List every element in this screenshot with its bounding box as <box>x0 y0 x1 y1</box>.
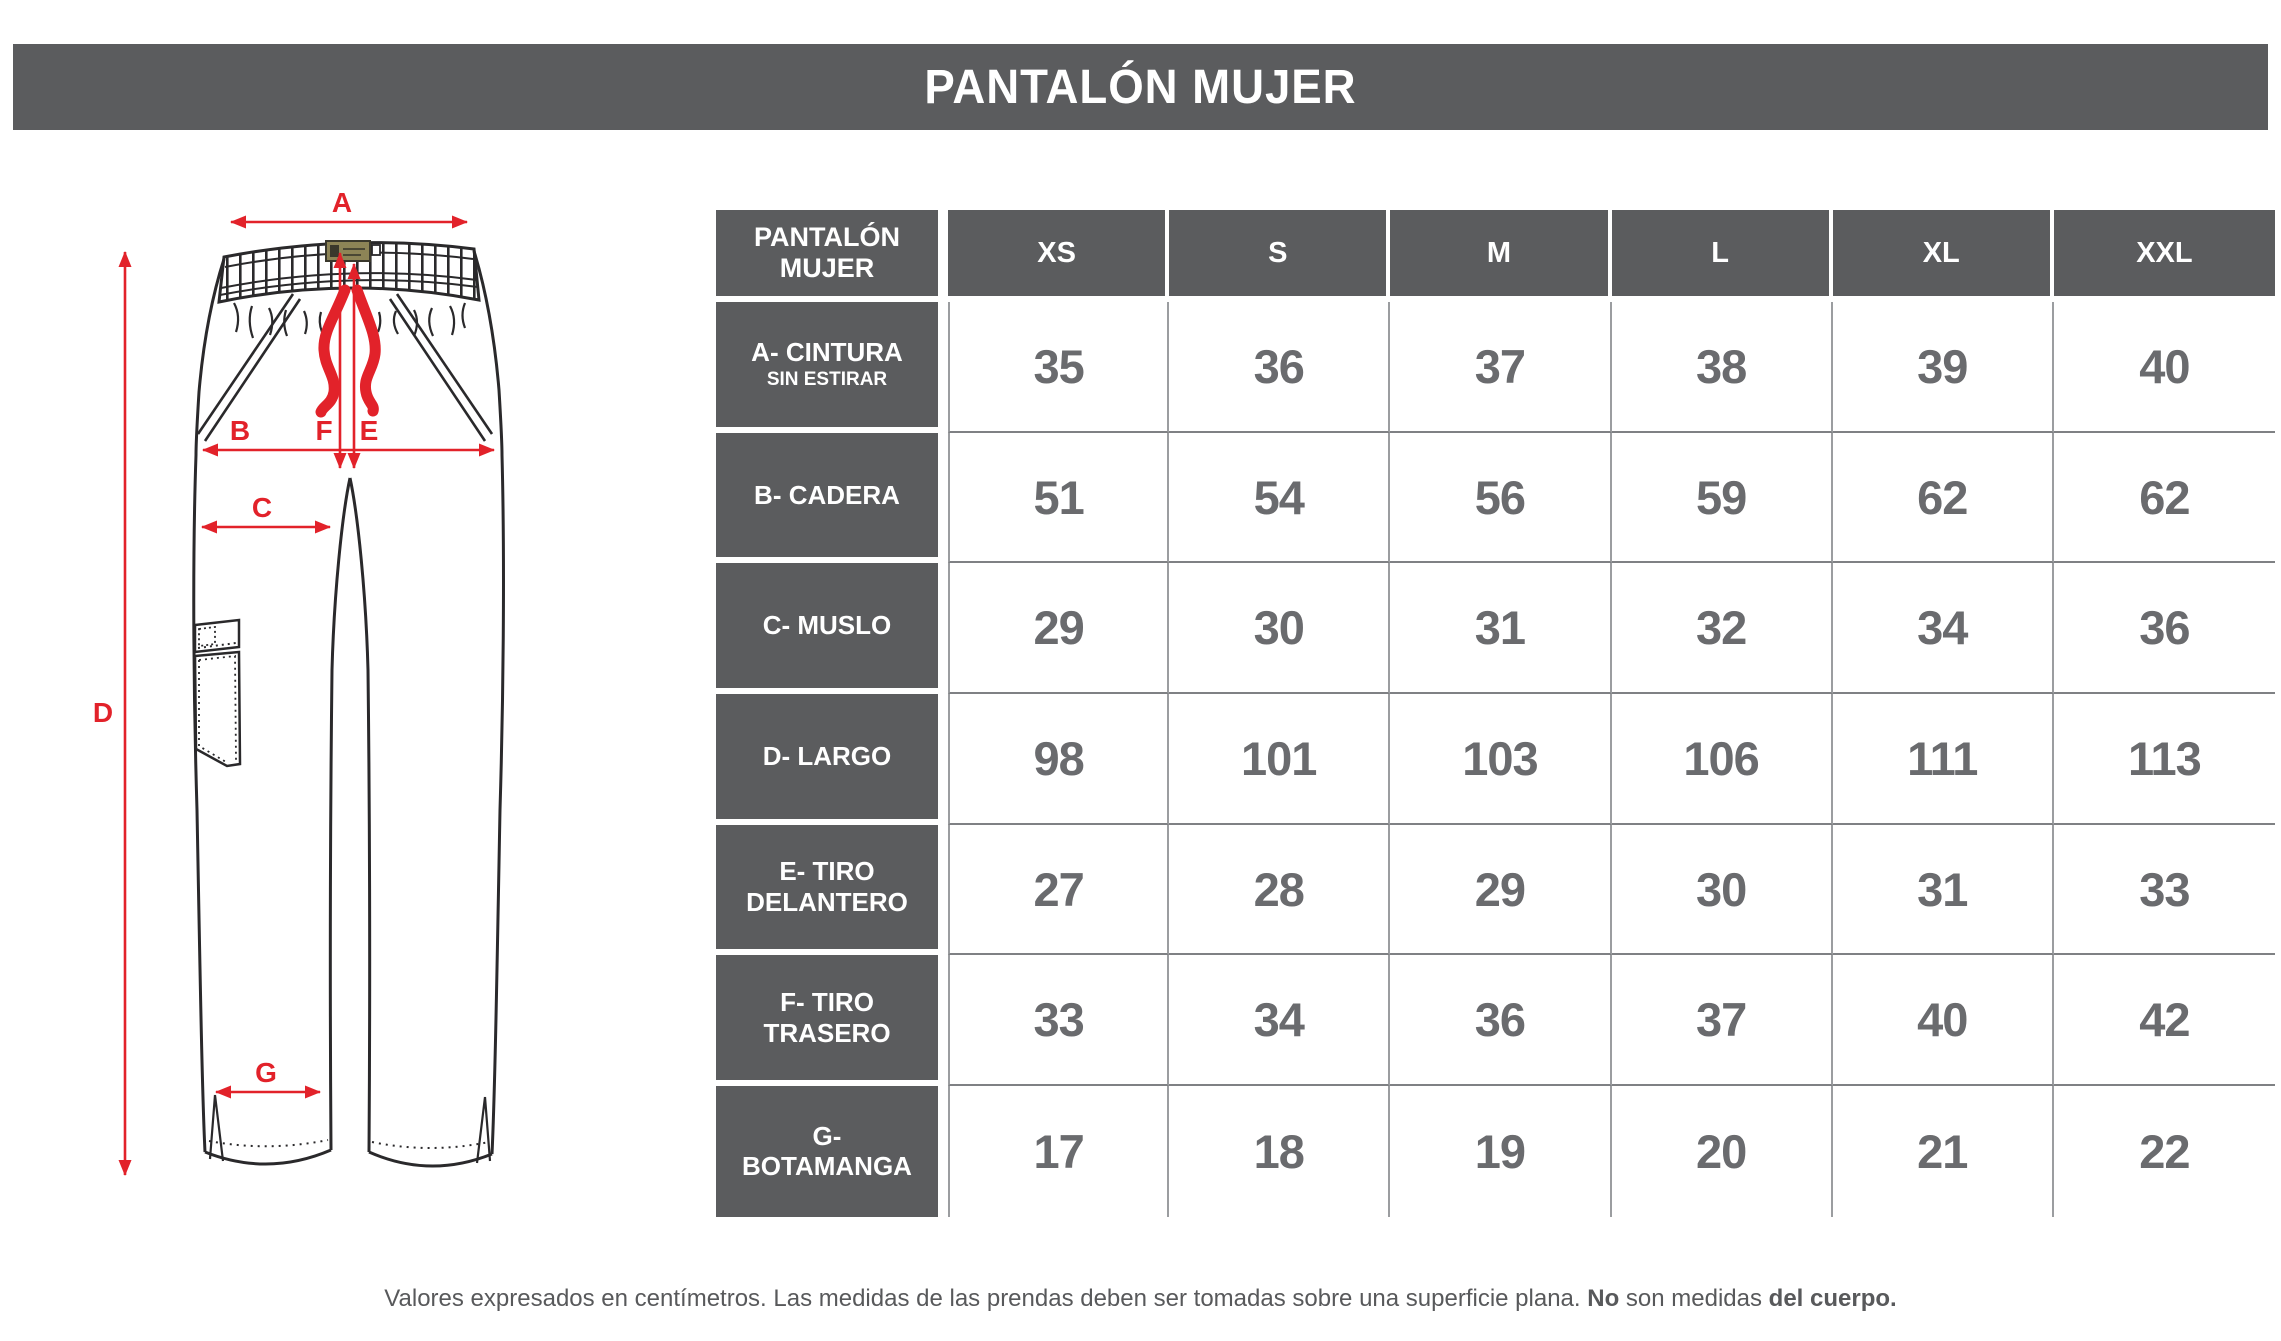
row-label-muslo: C- MUSLO <box>716 563 938 688</box>
footer-note: Valores expresados en centímetros. Las m… <box>0 1285 2281 1313</box>
table-cell: 34 <box>1833 563 2054 694</box>
footer-text: Valores expresados en centímetros. Las m… <box>384 1285 1587 1312</box>
table-cell: 113 <box>2054 694 2275 825</box>
measure-label-f: F <box>315 415 332 446</box>
measure-arrows <box>125 222 494 1175</box>
table-cell: 111 <box>1833 694 2054 825</box>
page-title: PANTALÓN MUJER <box>924 60 1356 115</box>
table-cell: 19 <box>1390 1086 1611 1217</box>
table-cell: 62 <box>1833 433 2054 564</box>
table-cell: 28 <box>1169 825 1390 956</box>
size-guide-page: { "title_bar": { "title": "PANTALÓN MUJE… <box>0 0 2281 1341</box>
measure-label-g: G <box>255 1057 277 1088</box>
table-cell: 36 <box>1390 955 1611 1086</box>
measure-label-d: D <box>93 697 113 728</box>
size-header-xl: XL <box>1833 210 2050 296</box>
size-header-s: S <box>1169 210 1386 296</box>
table-cell: 35 <box>948 302 1169 433</box>
table-cell: 103 <box>1390 694 1611 825</box>
table-cell: 39 <box>1833 302 2054 433</box>
table-corner-header: PANTALÓN MUJER <box>716 210 938 296</box>
row-label-cadera: B- CADERA <box>716 433 938 558</box>
table-cell: 40 <box>2054 302 2275 433</box>
footer-text-bold: del cuerpo. <box>1769 1285 1897 1312</box>
table-cell: 21 <box>1833 1086 2054 1217</box>
table-cell: 30 <box>1169 563 1390 694</box>
size-header-xxl: XXL <box>2054 210 2275 296</box>
table-cell: 36 <box>2054 563 2275 694</box>
cargo-pocket <box>195 620 240 766</box>
table-cell: 31 <box>1390 563 1611 694</box>
table-cell: 33 <box>948 955 1169 1086</box>
table-cell: 56 <box>1390 433 1611 564</box>
table-cell: 20 <box>1612 1086 1833 1217</box>
row-label-cintura: A- CINTURASIN ESTIRAR <box>716 302 938 427</box>
table-cell: 36 <box>1169 302 1390 433</box>
size-header-xs: XS <box>948 210 1165 296</box>
table-cell: 32 <box>1612 563 1833 694</box>
table-cell: 62 <box>2054 433 2275 564</box>
drawstring <box>321 290 375 412</box>
row-label-botamanga: G- BOTAMANGA <box>716 1086 938 1217</box>
table-cell: 98 <box>948 694 1169 825</box>
table-cell: 38 <box>1612 302 1833 433</box>
table-cell: 40 <box>1833 955 2054 1086</box>
table-cell: 37 <box>1390 302 1611 433</box>
row-label-tiro-trasero: F- TIRO TRASERO <box>716 955 938 1080</box>
table-cell: 22 <box>2054 1086 2275 1217</box>
footer-text-bold: No <box>1587 1285 1619 1312</box>
table-cell: 31 <box>1833 825 2054 956</box>
table-cell: 29 <box>1390 825 1611 956</box>
table-cell: 29 <box>948 563 1169 694</box>
table-cell: 17 <box>948 1086 1169 1217</box>
table-cell: 30 <box>1612 825 1833 956</box>
footer-text: son medidas <box>1619 1285 1768 1312</box>
size-table: PANTALÓN MUJER XS S M L XL XXL A- CINTUR… <box>716 210 2275 1217</box>
size-header-l: L <box>1612 210 1829 296</box>
table-cell: 54 <box>1169 433 1390 564</box>
hem-details <box>209 1095 490 1163</box>
measure-label-a: A <box>332 187 352 218</box>
row-label-largo: D- LARGO <box>716 694 938 819</box>
measure-label-e: E <box>360 415 379 446</box>
table-cell: 106 <box>1612 694 1833 825</box>
pants-measurement-diagram: A D B F E C G <box>40 130 540 1230</box>
table-cell: 34 <box>1169 955 1390 1086</box>
table-cell: 101 <box>1169 694 1390 825</box>
table-cell: 59 <box>1612 433 1833 564</box>
table-cell: 18 <box>1169 1086 1390 1217</box>
table-cell: 37 <box>1612 955 1833 1086</box>
row-label-tiro-delantero: E- TIRO DELANTERO <box>716 825 938 950</box>
measure-label-c: C <box>252 492 272 523</box>
fabric-gathers <box>234 303 465 338</box>
measure-label-b: B <box>230 415 250 446</box>
table-cell: 51 <box>948 433 1169 564</box>
title-bar: PANTALÓN MUJER <box>13 44 2268 130</box>
table-cell: 27 <box>948 825 1169 956</box>
table-cell: 33 <box>2054 825 2275 956</box>
size-header-m: M <box>1390 210 1607 296</box>
table-cell: 42 <box>2054 955 2275 1086</box>
